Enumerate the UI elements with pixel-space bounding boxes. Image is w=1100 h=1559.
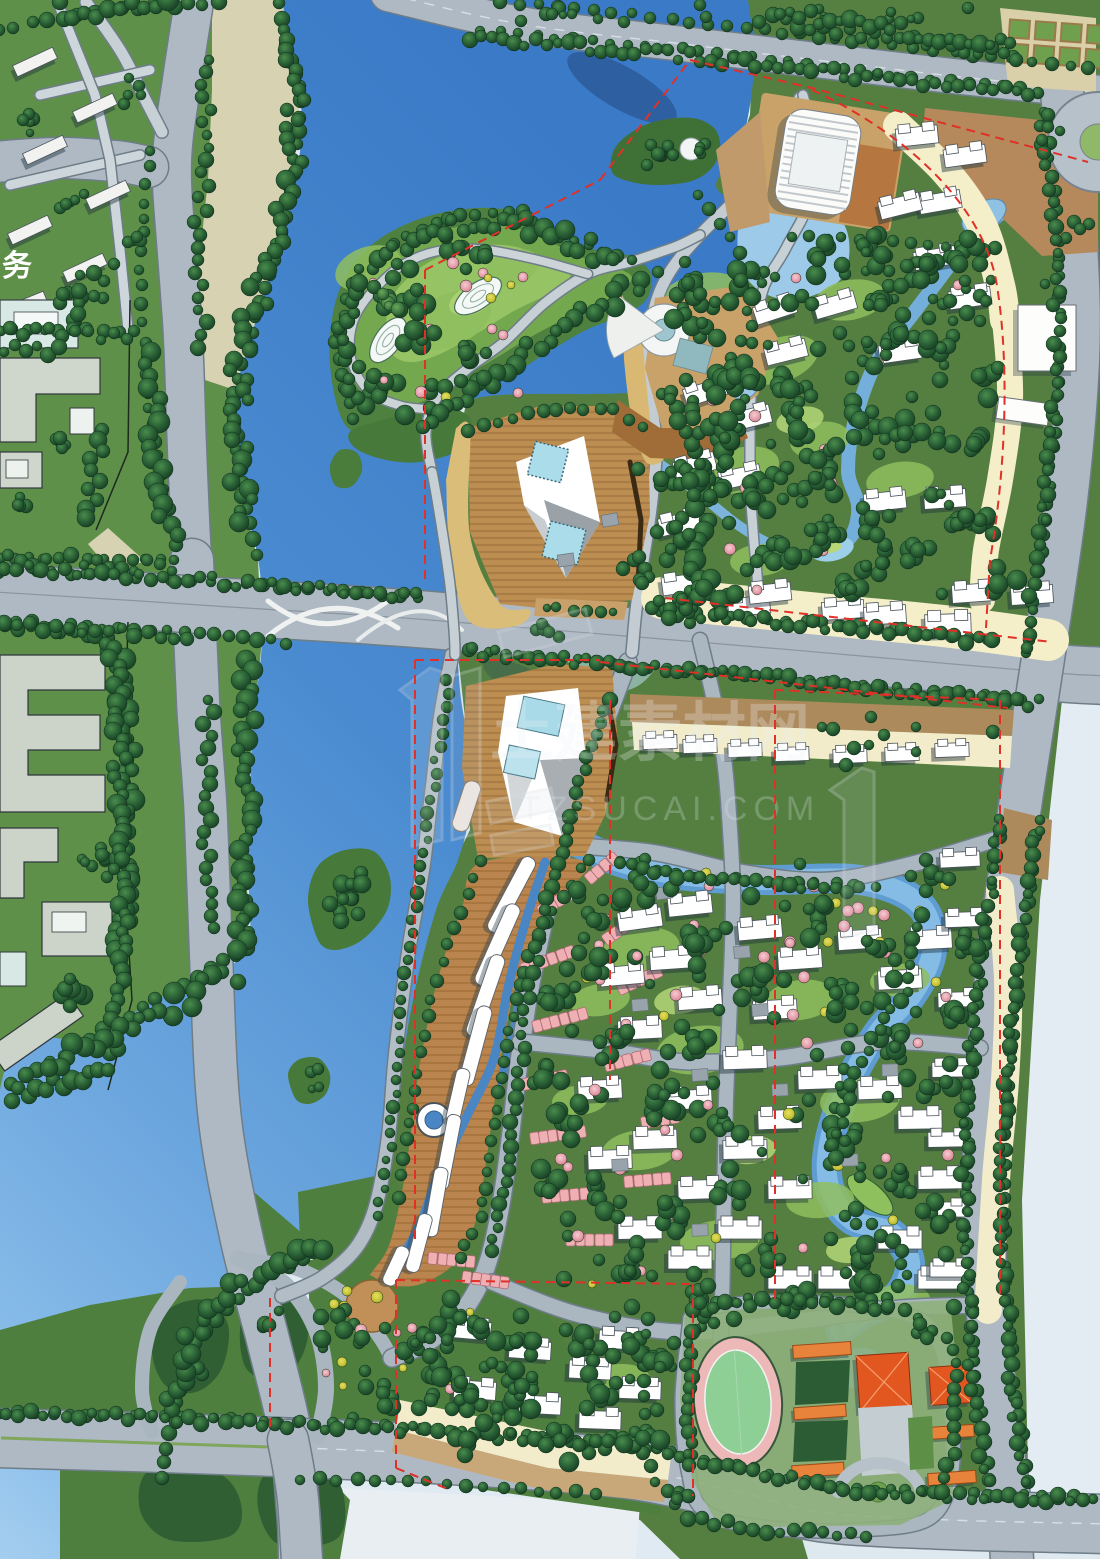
svg-text:土建素材网: 土建素材网 (490, 697, 810, 769)
svg-text:务: 务 (2, 250, 32, 283)
